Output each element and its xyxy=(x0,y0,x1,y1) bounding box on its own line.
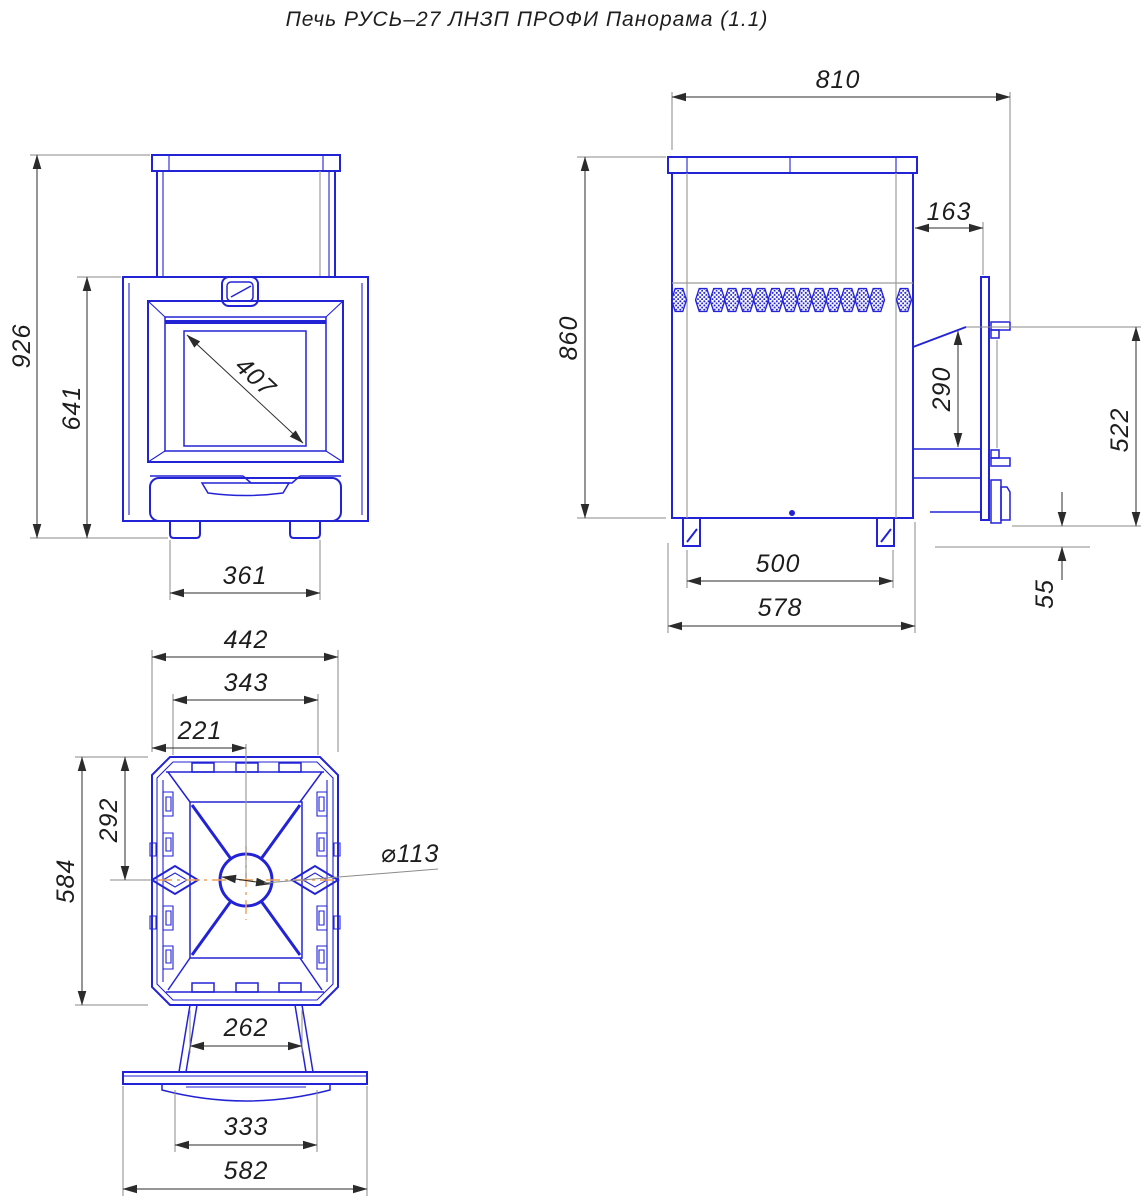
svg-text:641: 641 xyxy=(58,386,86,431)
dim-glass-diagonal: 407 xyxy=(187,335,303,443)
svg-text:578: 578 xyxy=(758,594,803,622)
svg-text:361: 361 xyxy=(223,562,268,590)
svg-text:343: 343 xyxy=(224,669,269,697)
svg-text:292: 292 xyxy=(95,798,123,844)
svg-text:442: 442 xyxy=(224,626,269,654)
dim-chimney-diameter: ⌀113 xyxy=(222,840,439,884)
dim-top-center-offset: 221 xyxy=(152,717,246,748)
front-body xyxy=(123,277,368,521)
dim-door-offset: 163 xyxy=(915,198,983,275)
front-ash-drawer xyxy=(150,478,341,521)
svg-text:500: 500 xyxy=(756,550,801,578)
svg-text:926: 926 xyxy=(8,324,36,369)
side-vent-mesh xyxy=(672,289,912,312)
dim-top-center-depth: 292 xyxy=(95,757,150,880)
dim-firebox-height: 641 xyxy=(58,277,121,538)
svg-text:860: 860 xyxy=(555,316,583,361)
svg-text:522: 522 xyxy=(1106,408,1134,453)
svg-text:810: 810 xyxy=(816,66,861,94)
side-view: 810 860 163 290 522 xyxy=(555,66,1141,633)
svg-text:584: 584 xyxy=(52,859,80,904)
drain-dot xyxy=(789,510,795,516)
top-cross-and-chimney xyxy=(158,744,334,955)
svg-text:290: 290 xyxy=(928,367,956,413)
svg-text:221: 221 xyxy=(177,717,223,745)
svg-text:262: 262 xyxy=(223,1014,269,1042)
side-body xyxy=(672,173,913,518)
dim-top-base-width: 582 xyxy=(123,1086,367,1196)
svg-text:582: 582 xyxy=(224,1157,269,1185)
dim-top-front-width: 262 xyxy=(190,1010,302,1053)
front-chimney xyxy=(152,155,340,277)
svg-text:407: 407 xyxy=(230,352,282,403)
side-top-cap xyxy=(668,157,917,173)
top-view: 442 343 221 584 292 xyxy=(52,626,439,1196)
top-body-outline xyxy=(152,757,338,1005)
side-feet xyxy=(683,518,894,546)
dim-body-height: 860 xyxy=(555,157,666,518)
dim-feet-span: 500 xyxy=(687,550,893,588)
front-view: 926 641 407 361 xyxy=(8,155,368,600)
dim-top-shield-width: 333 xyxy=(175,1090,317,1152)
front-feet xyxy=(170,521,320,538)
svg-text:163: 163 xyxy=(927,198,972,226)
dim-top-body-depth: 584 xyxy=(52,757,148,1005)
technical-drawing: 926 641 407 361 xyxy=(0,0,1146,1200)
dim-floor-gap: 55 xyxy=(935,492,1090,609)
svg-text:333: 333 xyxy=(224,1113,269,1141)
drawing-sheet: Печь РУСЬ–27 ЛНЗП ПРОФИ Панорама (1.1) xyxy=(0,0,1146,1200)
dim-overall-height: 926 xyxy=(8,155,168,538)
dim-feet-width: 361 xyxy=(170,540,320,600)
dim-door-height: 522 xyxy=(1012,327,1141,526)
svg-text:55: 55 xyxy=(1031,579,1059,609)
svg-text:⌀113: ⌀113 xyxy=(381,840,440,868)
